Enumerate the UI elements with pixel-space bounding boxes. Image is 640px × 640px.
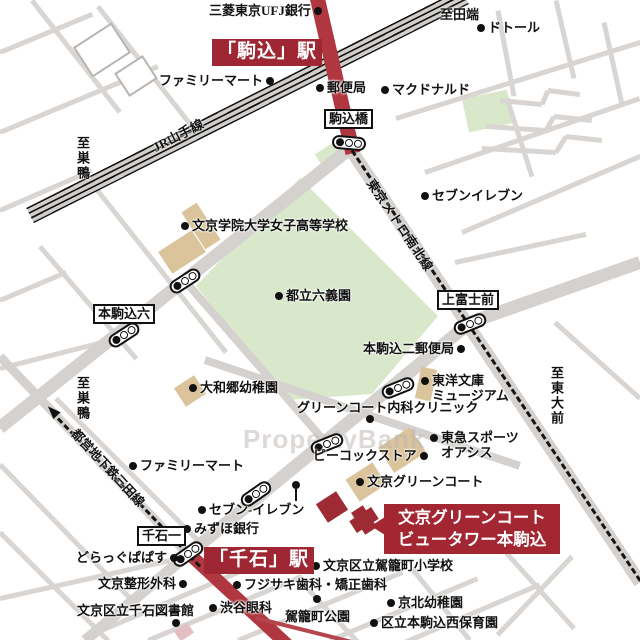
poi-dot xyxy=(209,604,217,612)
poi-mcdonalds: マクドナルド xyxy=(381,83,470,98)
poi-bunkyo-orthopedics: 文京整形外科 xyxy=(98,577,187,592)
poi-seven-eleven-mid: セブンイレブン xyxy=(421,189,523,204)
street xyxy=(553,320,640,400)
poi-kagomachi-elementary: 文京区立駕籠町小学校 xyxy=(312,559,453,574)
poi-dot xyxy=(198,506,206,514)
property-name-line1: 文京グリーンコート xyxy=(384,507,560,529)
traffic-light-icon xyxy=(331,135,366,152)
street xyxy=(454,232,586,265)
poi-bunkyo-green-court: 文京グリーンコート xyxy=(356,475,483,490)
poi-dot xyxy=(275,292,283,300)
poi-doutor: ドトール xyxy=(477,21,540,36)
sengoku-station-label: 「千石」駅 xyxy=(204,547,314,574)
intersection-kamifujimae: 上富士前 xyxy=(437,290,499,310)
poi-dot xyxy=(314,7,322,15)
street xyxy=(566,134,603,143)
property-callout: 文京グリーンコート ビュータワー本駒込 xyxy=(384,504,560,554)
direction-todaimae: 至東大前 xyxy=(547,366,566,426)
poi-dot xyxy=(421,192,429,200)
direction-sugamo-top: 至巣鴨 xyxy=(73,136,92,181)
poi-dot xyxy=(179,580,187,588)
poi-dot xyxy=(266,77,274,85)
street xyxy=(548,88,581,97)
poi-dot xyxy=(370,619,378,627)
leader-line xyxy=(295,489,297,501)
poi-keihoku-kindergarten: 京北幼稚園 xyxy=(387,596,463,611)
intersection-honkomagome6: 本駒込六 xyxy=(93,304,155,324)
poi-yamato-kindergarten: 大和郷幼稚園 xyxy=(189,381,278,396)
poi-dot xyxy=(430,434,438,442)
poi-dot xyxy=(457,345,465,353)
poi-fujisaki-dental: フジサキ歯科・矯正歯科 xyxy=(233,578,387,593)
poi-bunkyo-gakuin-school: 文京学院大学女子高等学校 xyxy=(181,219,348,234)
poi-greencourt-clinic: グリーンコート内科クリニック xyxy=(297,401,478,416)
poi-peacock-store: ピーコックストア xyxy=(313,449,428,464)
direction-sugamo-left: 至巣鴨 xyxy=(73,376,92,421)
poi-dot xyxy=(381,86,389,94)
poi-dot xyxy=(189,384,197,392)
poi-sengoku-library: 文京区立千石図書館 xyxy=(77,604,194,619)
direction-tabata: 至田端 xyxy=(440,4,479,23)
poi-dot xyxy=(316,84,324,92)
poi-kagomachi-park: 駕籠町公園 xyxy=(285,610,350,625)
poi-familymart-south: ファミリーマート xyxy=(129,459,244,474)
komagome-station-label: 「駒込」駅 xyxy=(212,39,322,66)
route-map: PropertyBank 三菱東京UFJ銀行 ドトール ファミリーマート 郵便局… xyxy=(0,0,640,640)
poi-familymart-north: ファミリーマート xyxy=(159,74,274,89)
poi-dot-park xyxy=(313,595,321,603)
poi-mitsubishi-ufj-bank: 三菱東京UFJ銀行 xyxy=(209,4,322,19)
poi-nishi-nursery: 区立本駒込西保育園 xyxy=(370,616,498,631)
poi-shibuya-eye-clinic: 渋谷眼科 xyxy=(209,601,272,616)
poi-dot xyxy=(170,554,178,562)
intersection-sengoku1: 千石一 xyxy=(137,526,186,546)
street xyxy=(424,96,640,175)
poi-dot xyxy=(477,24,485,32)
poi-tokyu-sports-oasis: 東急スポーツ オアシス xyxy=(430,431,519,460)
poi-dot xyxy=(420,452,428,460)
poi-dot-library xyxy=(172,619,180,627)
poi-dot xyxy=(356,478,364,486)
street xyxy=(602,21,625,104)
building-outline xyxy=(114,55,158,97)
intersection-komagomebashi: 駒込橋 xyxy=(324,109,373,129)
poi-dot xyxy=(387,599,395,607)
poi-dot xyxy=(129,462,137,470)
property-name-line2: ビュータワー本駒込 xyxy=(384,529,560,551)
poi-dot xyxy=(421,377,429,385)
jr-yamanote-line-label: JR山手線 xyxy=(149,95,242,155)
poi-dot-clinic xyxy=(366,415,374,423)
poi-seven-eleven-south: セブン-イレブン xyxy=(198,503,304,518)
poi-dot xyxy=(233,581,241,589)
poi-dot-seveneleven xyxy=(292,481,300,489)
poi-honkomagome2-post-office: 本駒込二郵便局 xyxy=(363,342,465,357)
property-building xyxy=(316,491,348,523)
poi-toyo-bunko-museum: 東洋文庫 ミュージアム xyxy=(421,374,509,403)
poi-rikugien: 都立六義園 xyxy=(275,289,351,304)
poi-dot xyxy=(181,222,189,230)
poi-mizuho-bank: みずほ銀行 xyxy=(183,522,259,537)
poi-drug-papas: どらっぐぱぱす xyxy=(76,551,178,566)
poi-post-office: 郵便局 xyxy=(316,81,366,96)
street xyxy=(0,270,67,303)
